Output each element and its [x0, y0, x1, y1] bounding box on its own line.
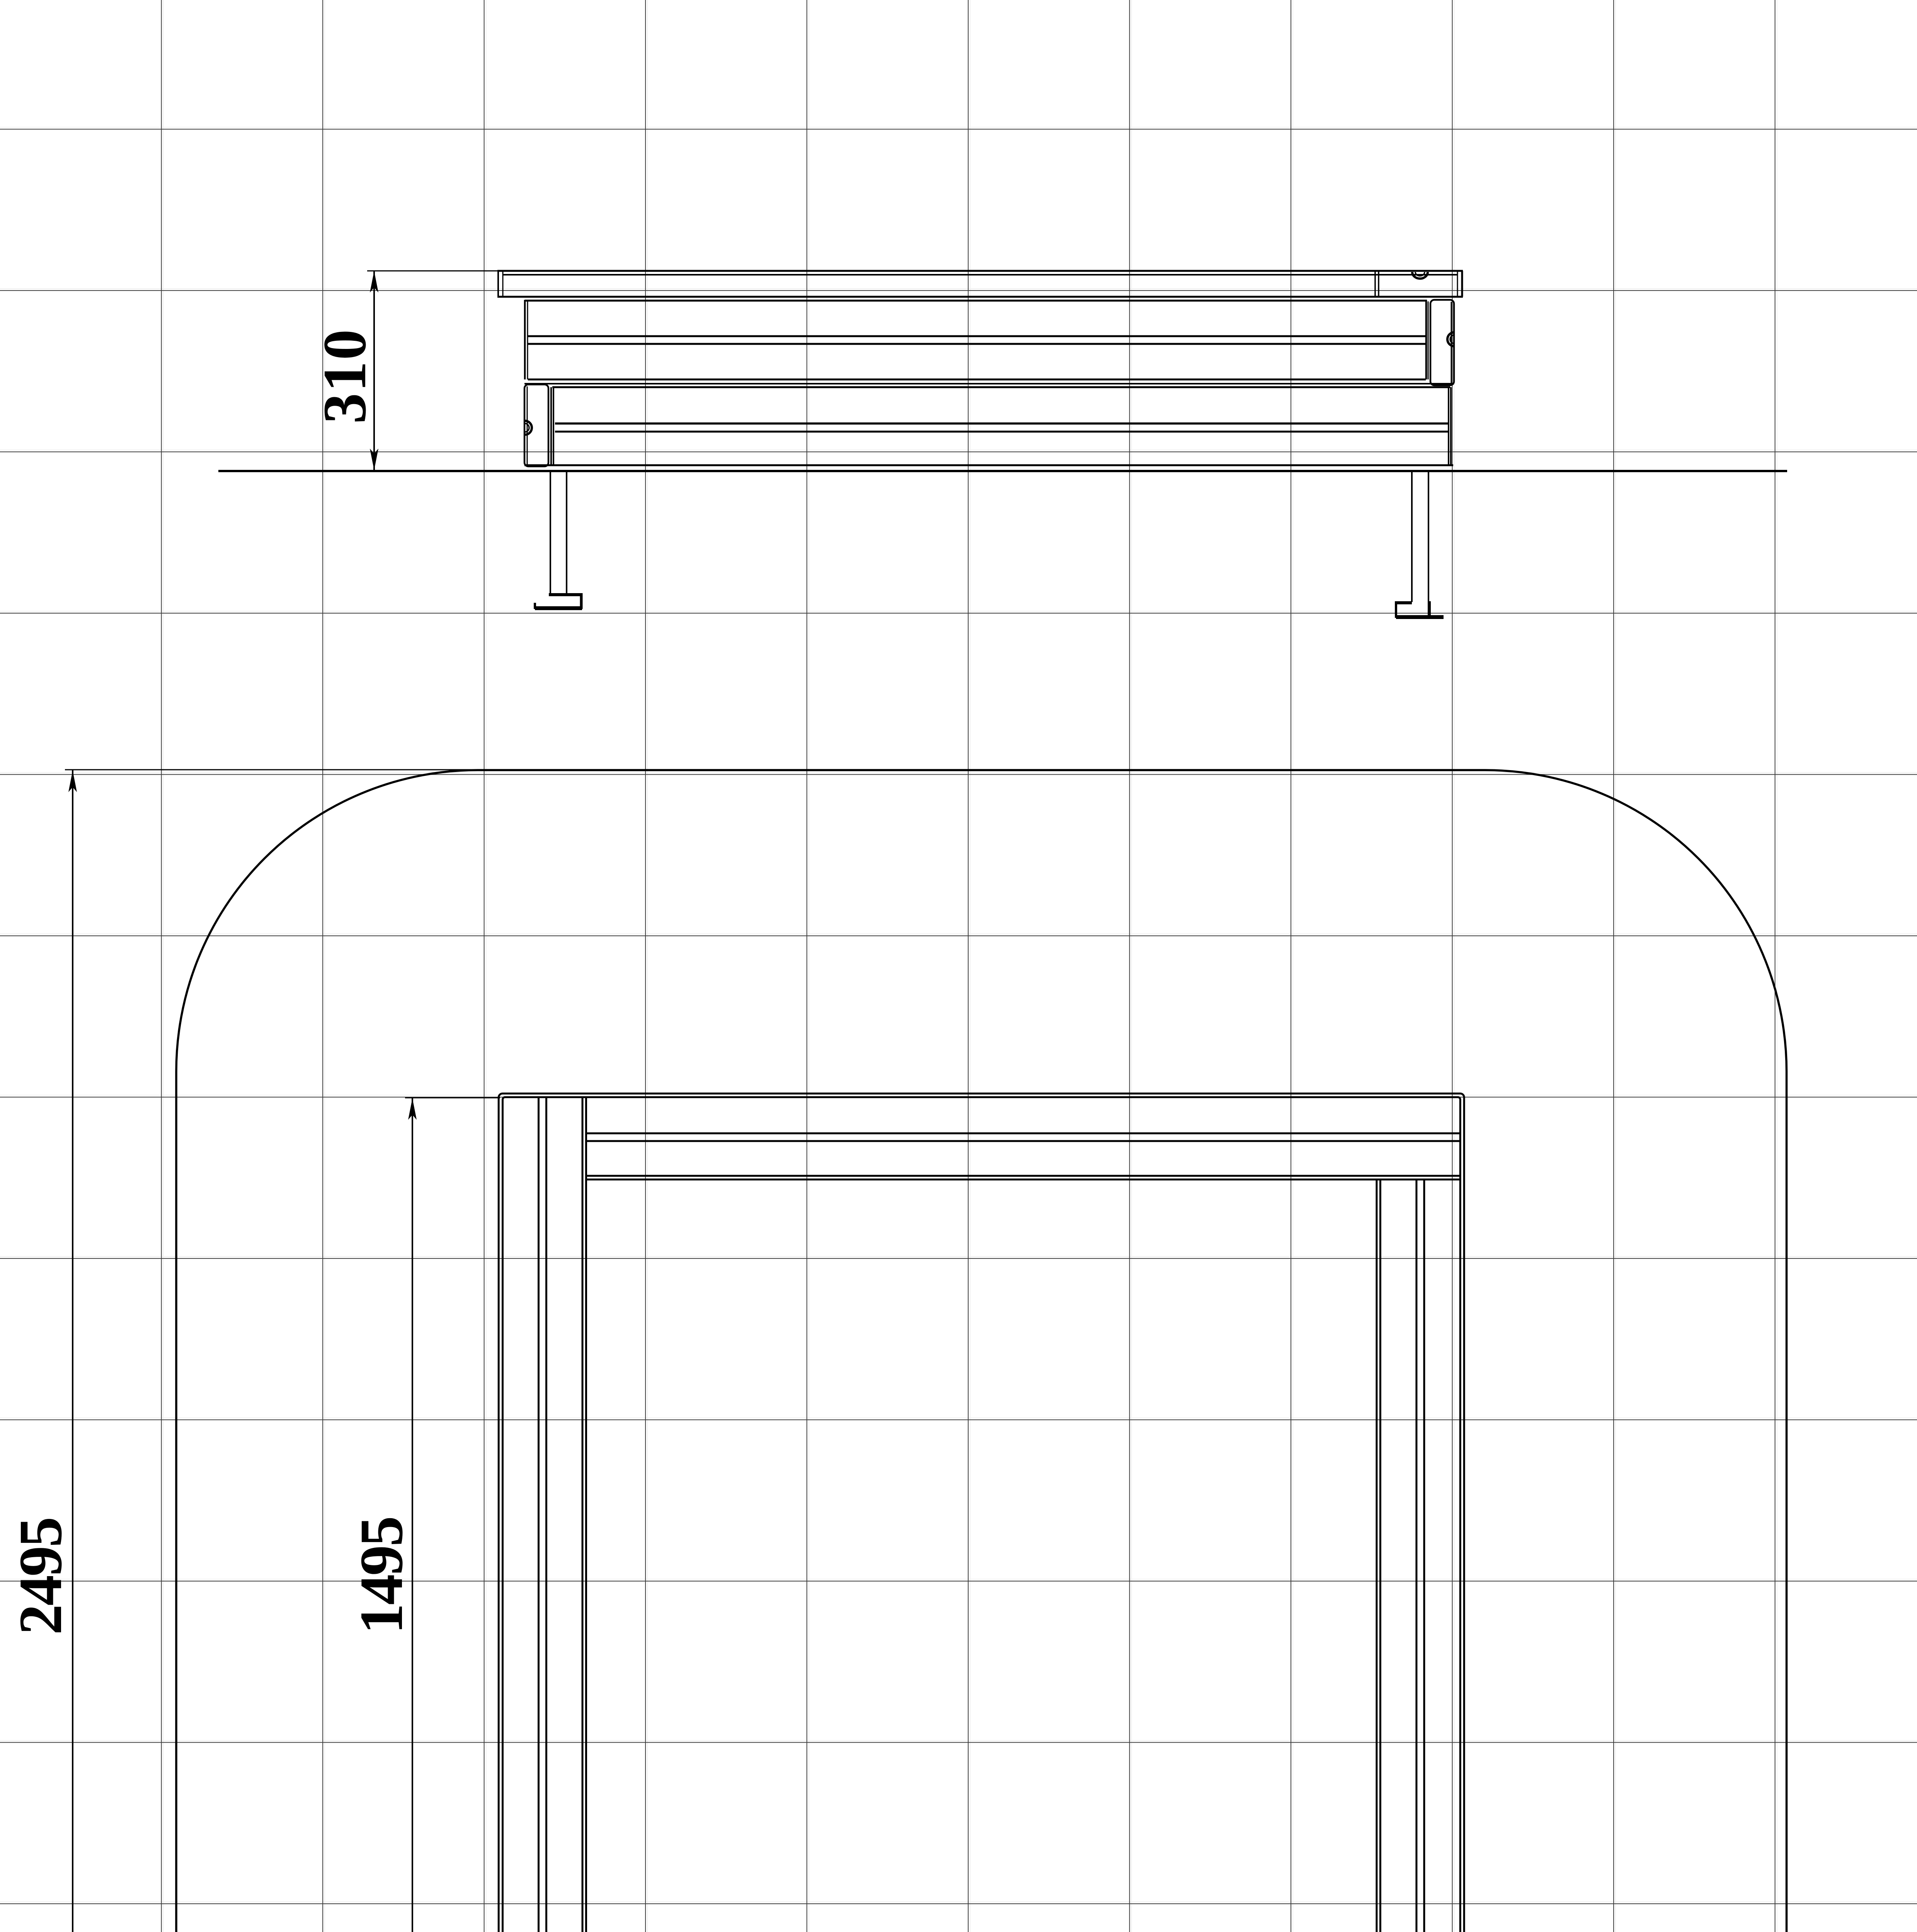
svg-text:310: 310 [311, 328, 379, 424]
svg-text:1495: 1495 [347, 1517, 415, 1634]
svg-text:2495: 2495 [7, 1518, 75, 1635]
